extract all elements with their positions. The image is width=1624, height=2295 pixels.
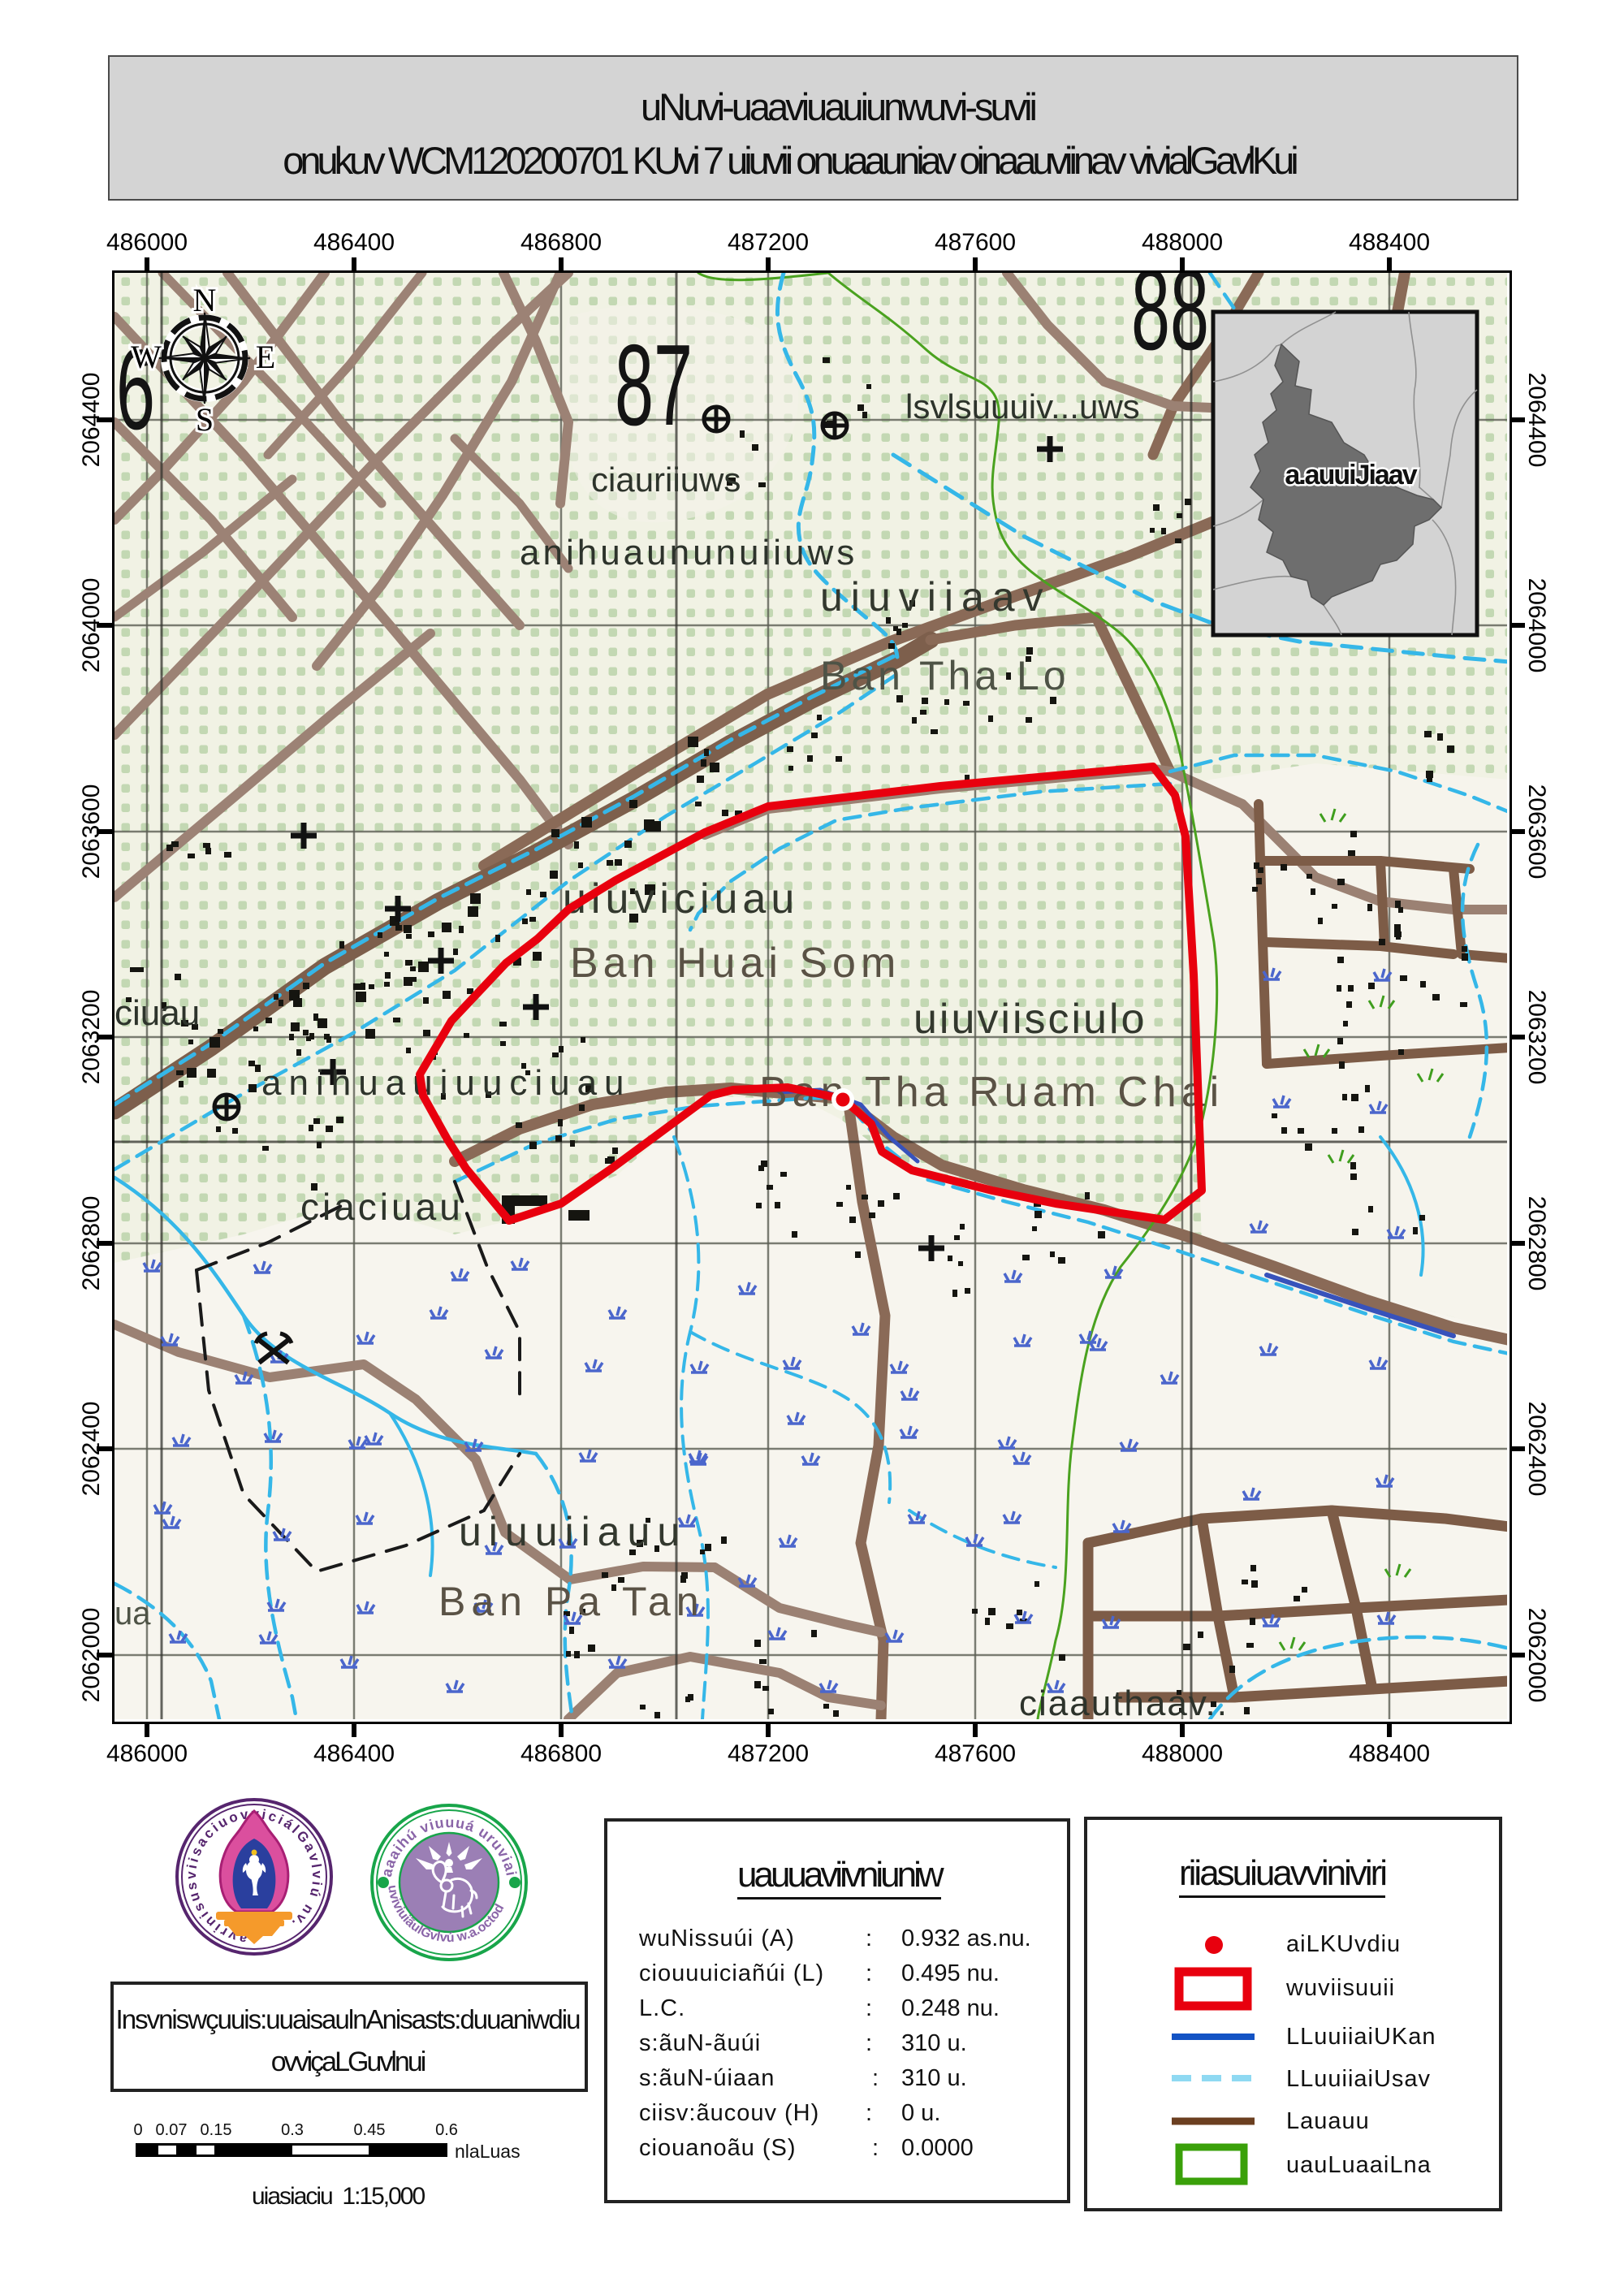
svg-text:ciauriiuws: ciauriiuws xyxy=(591,460,741,499)
svg-text:87: 87 xyxy=(615,321,693,450)
svg-text:0.6: 0.6 xyxy=(435,2121,458,2139)
svg-text:ua: ua xyxy=(114,1596,151,1632)
svg-text:ciaciuau: ciaciuau xyxy=(300,1186,464,1228)
svg-text:Ban Tha Lo: Ban Tha Lo xyxy=(820,653,1070,698)
svg-text:uiuviisciulo: uiuviisciulo xyxy=(914,996,1147,1043)
svg-text:0: 0 xyxy=(133,2121,142,2139)
svg-text:ciaauthaav..: ciaauthaav.. xyxy=(1019,1683,1229,1719)
svg-text:anihuauiuuciuau: anihuauiuuciuau xyxy=(261,1063,632,1103)
svg-text:Ban Pa Tan: Ban Pa Tan xyxy=(438,1579,705,1624)
svg-text:W: W xyxy=(131,339,162,375)
svg-text:Ban Huai Som: Ban Huai Som xyxy=(570,940,901,987)
svg-text:N: N xyxy=(193,282,217,318)
svg-text:a.auuiJiaav: a.auuiJiaav xyxy=(1285,460,1417,491)
svg-text:nlaLuas: nlaLuas xyxy=(455,2141,520,2162)
svg-text:uiuviciuau: uiuviciuau xyxy=(563,875,799,923)
svg-text:0.07: 0.07 xyxy=(156,2121,188,2139)
svg-text:E: E xyxy=(256,339,275,375)
svg-text:0.3: 0.3 xyxy=(281,2121,304,2139)
svg-text:lsvlsuuuiv...uws: lsvlsuuuiv...uws xyxy=(905,387,1140,426)
svg-text:88: 88 xyxy=(1131,273,1209,374)
svg-text:uiuuiiauu: uiuuiiauu xyxy=(459,1509,687,1554)
svg-text:uiuviiaav: uiuviiaav xyxy=(820,574,1052,620)
svg-text:anihuaununuiiuws: anihuaununuiiuws xyxy=(520,533,857,573)
svg-text:0.45: 0.45 xyxy=(354,2121,386,2139)
svg-text:S: S xyxy=(196,401,214,438)
svg-text:ciuau: ciuau xyxy=(114,993,200,1033)
svg-text:0.15: 0.15 xyxy=(201,2121,232,2139)
